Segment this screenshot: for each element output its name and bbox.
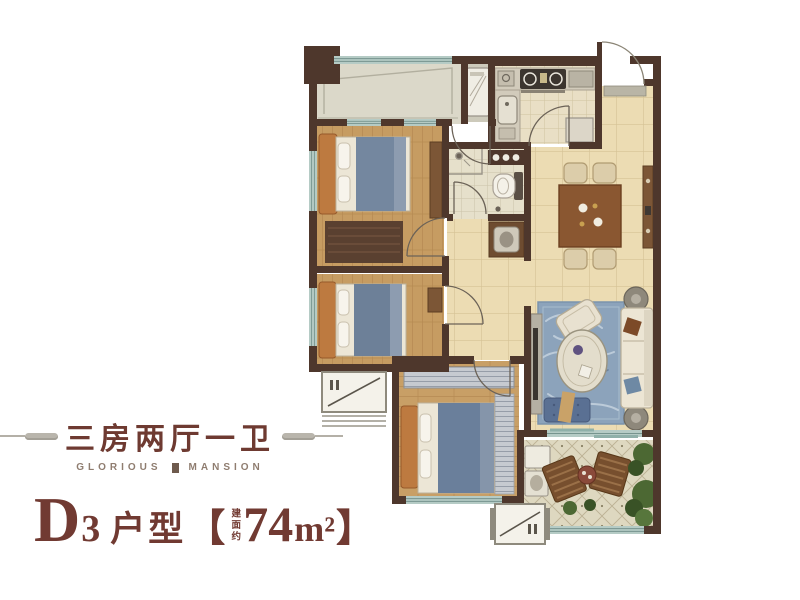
layout-title: 三房两厅一卫 (65, 414, 275, 458)
vanity-icon (488, 150, 524, 165)
dining-chair-icon (593, 249, 616, 269)
double-bed-icon (319, 282, 406, 358)
double-bed-icon (401, 403, 494, 493)
unit-letter: D (34, 488, 80, 552)
area-number: 74 (243, 495, 293, 553)
floor-plan (292, 16, 704, 568)
curtain-strip (495, 394, 514, 494)
wardrobe-strip (430, 142, 442, 218)
ornament-right-icon (282, 433, 343, 440)
kitchen-sink-icon (498, 96, 517, 139)
ac-platform-south (490, 504, 550, 544)
bed-end-rug (325, 221, 403, 263)
brand-right: MANSION (189, 462, 264, 473)
nightstand (428, 288, 442, 312)
unit-label-row: D 3 户型 【 建面约 74 m² 】 (34, 488, 375, 553)
window-icon (406, 496, 502, 504)
layout-title-row: 三房两厅一卫 (24, 414, 316, 458)
unit-type-label: 户型 (110, 501, 186, 552)
window-icon (334, 56, 452, 64)
floor-drain-icon (495, 206, 500, 211)
washbasin-icon (489, 222, 524, 257)
brand-divider-icon (172, 463, 179, 473)
dining-chair-icon (593, 163, 616, 183)
living-room (531, 287, 653, 430)
ac-platform-west (322, 372, 386, 426)
entry-floor (600, 86, 656, 156)
console-table-icon (643, 166, 653, 248)
bracket-open: 【 (187, 497, 225, 552)
doormat-icon (604, 86, 646, 96)
brand-row: GLORIOUS MANSION (24, 462, 316, 473)
area-unit: m² (294, 508, 335, 550)
area-prefix: 建面约 (227, 508, 241, 543)
unit-digit: 3 (81, 507, 100, 551)
sofa-icon (621, 308, 653, 408)
tv-console-icon (531, 314, 542, 414)
coffee-table-icon (557, 330, 607, 392)
patio-table-icon (578, 466, 596, 484)
dining-chair-icon (564, 163, 587, 183)
bracket-close: 】 (336, 497, 374, 552)
dining-chair-icon (564, 249, 587, 269)
dining-table-icon (559, 185, 621, 247)
page: 三房两厅一卫 GLORIOUS MANSION D 3 户型 【 建面约 74 … (0, 0, 800, 600)
entry-door-leaf (597, 42, 602, 86)
window-icon (534, 526, 644, 534)
brand-left: GLORIOUS (76, 462, 161, 473)
ornament-left-icon (0, 433, 58, 440)
washing-machine-icon (467, 68, 489, 116)
refrigerator-icon (566, 118, 593, 142)
master-bedroom (401, 367, 514, 494)
double-bed-icon (319, 134, 410, 214)
